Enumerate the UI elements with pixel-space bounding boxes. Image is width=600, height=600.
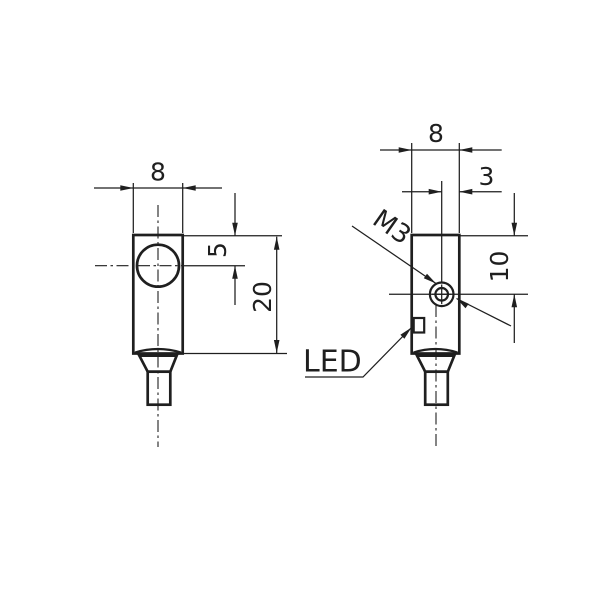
drawing-background <box>0 0 600 600</box>
side-width-dim-label: 8 <box>428 119 444 148</box>
dimension-drawing: 8 5 20 8 <box>0 0 600 600</box>
side-screw-dim-label: 10 <box>485 251 514 283</box>
front-width-dim-label: 8 <box>150 158 166 187</box>
led-label: LED <box>303 345 362 380</box>
front-length-dim-label: 20 <box>248 281 277 313</box>
front-face-dim-label: 5 <box>203 242 232 258</box>
side-offset-dim-label: 3 <box>479 162 495 191</box>
